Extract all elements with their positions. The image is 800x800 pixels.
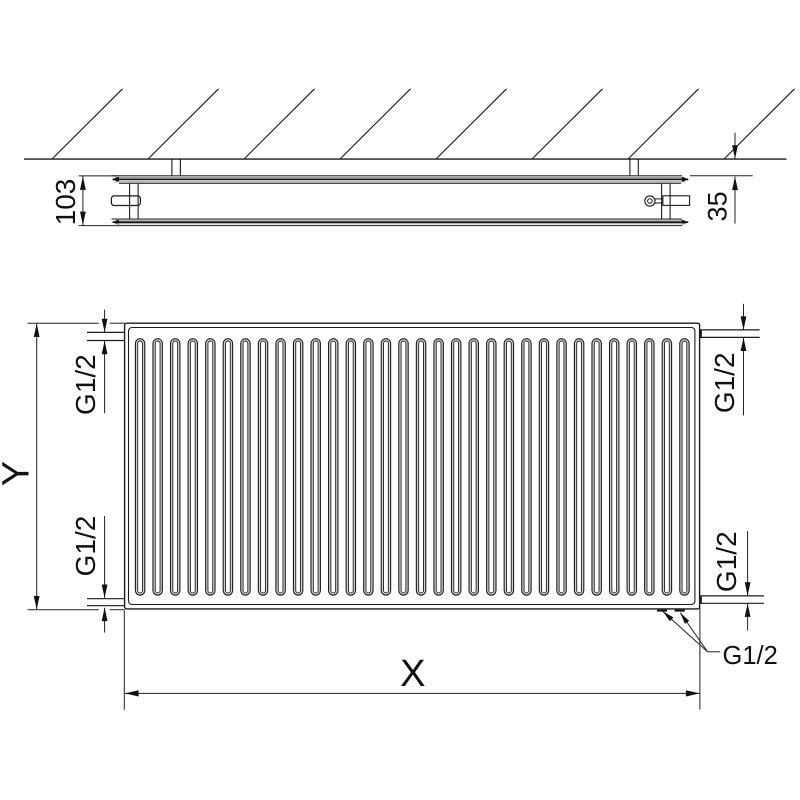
svg-text:X: X <box>400 653 425 695</box>
svg-text:G1/2: G1/2 <box>709 352 740 413</box>
svg-text:103: 103 <box>50 179 81 226</box>
svg-text:G1/2: G1/2 <box>70 516 101 577</box>
svg-text:Y: Y <box>0 461 38 486</box>
svg-text:35: 35 <box>703 191 733 221</box>
svg-text:G1/2: G1/2 <box>70 354 101 415</box>
svg-text:G1/2: G1/2 <box>711 531 742 592</box>
svg-text:G1/2: G1/2 <box>723 642 778 670</box>
